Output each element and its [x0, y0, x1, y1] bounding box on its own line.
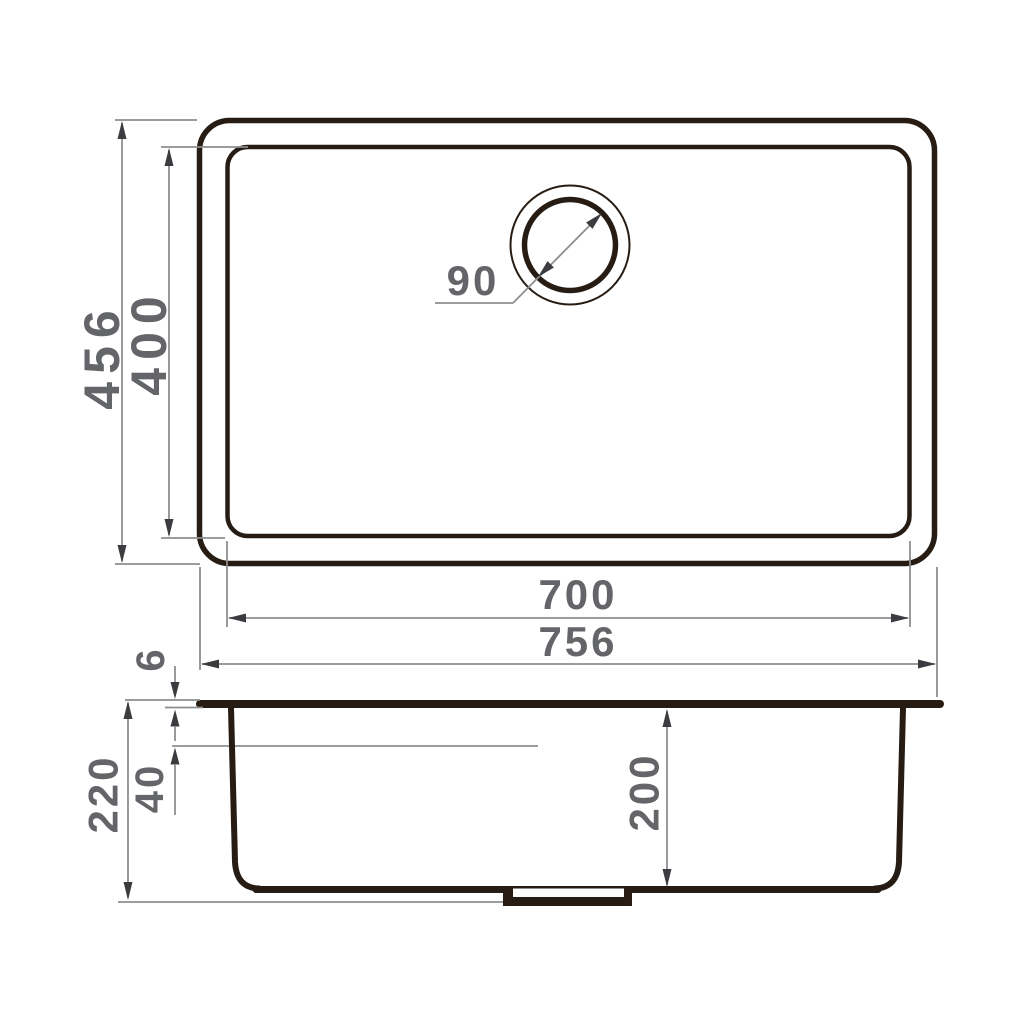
arrowhead-down — [165, 519, 174, 537]
dim-inner-width: 700 — [227, 541, 910, 627]
sink-outer-rim-outline — [200, 121, 935, 564]
bowl-right-wall — [875, 708, 903, 889]
arrowhead-down — [124, 882, 133, 900]
dimension-label-overall-height: 220 — [80, 754, 127, 833]
dimension-label-inner-width: 700 — [538, 571, 617, 618]
dimension-label-outer-width: 756 — [538, 618, 617, 665]
dimension-label-inner-depth: 400 — [121, 288, 177, 395]
dimension-label-drain-diameter: 90 — [447, 257, 500, 304]
arrowhead-down — [118, 545, 127, 563]
bowl-left-wall — [231, 708, 259, 889]
arrowhead-down — [663, 869, 672, 887]
dim-bowl-depth: 200 — [621, 709, 672, 887]
arrowhead-up — [118, 121, 127, 139]
sink-technical-drawing: 456 400 90 700 756 — [0, 0, 1024, 1024]
dim-rim-thickness: 6 — [125, 646, 203, 741]
arrowhead-up — [165, 148, 174, 166]
arrowhead-right — [891, 614, 909, 623]
arrowhead-up — [124, 701, 133, 719]
arrowhead-left — [228, 614, 246, 623]
arrowhead-down — [171, 682, 180, 699]
arrowhead-up — [663, 709, 672, 727]
drain-boss-slot — [513, 889, 624, 898]
arrowhead-up — [171, 710, 180, 727]
section-view — [118, 704, 940, 906]
dimension-label-overflow-distance: 40 — [128, 763, 172, 814]
dim-overall-height: 220 — [80, 701, 133, 900]
overflow-opening — [538, 733, 597, 760]
drawing-svg: 456 400 90 700 756 — [0, 0, 1024, 1024]
dim-overflow-distance: 40 — [128, 748, 180, 816]
sink-bowl-inner-outline — [228, 147, 910, 536]
arrowhead-right — [918, 660, 936, 669]
dimension-label-bowl-depth: 200 — [621, 752, 668, 831]
arrowhead-up — [171, 748, 180, 765]
top-view — [200, 121, 935, 564]
arrowhead-left — [201, 660, 219, 669]
dimension-label-rim-thickness: 6 — [129, 646, 173, 671]
